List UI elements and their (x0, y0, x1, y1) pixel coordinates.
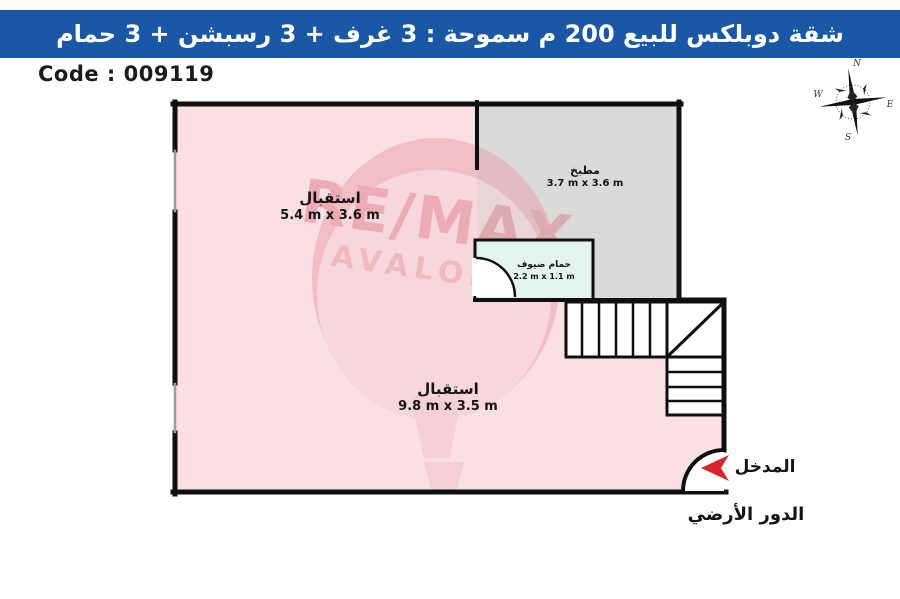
floor-name-label: الدور الأرضي (688, 504, 805, 525)
entrance-label: المدخل (735, 457, 796, 477)
floorplan-page: شقة دوبلكس للبيع 200 م سموحة : 3 غرف + 3… (0, 0, 900, 599)
kitchen-dimensions: 3.7 m x 3.6 m (547, 178, 624, 189)
guest-bathroom-dimensions: 2.2 m x 1.1 m (513, 272, 574, 281)
guest-bathroom-label: حمام ضيوف (517, 260, 571, 270)
reception-1-label: استقبال (299, 189, 361, 207)
reception-2-dimensions: 9.8 m x 3.5 m (398, 399, 498, 414)
kitchen-label: مطبخ (570, 164, 600, 177)
reception-1-dimensions: 5.4 m x 3.6 m (280, 208, 380, 223)
reception-2-label: استقبال (417, 380, 479, 398)
